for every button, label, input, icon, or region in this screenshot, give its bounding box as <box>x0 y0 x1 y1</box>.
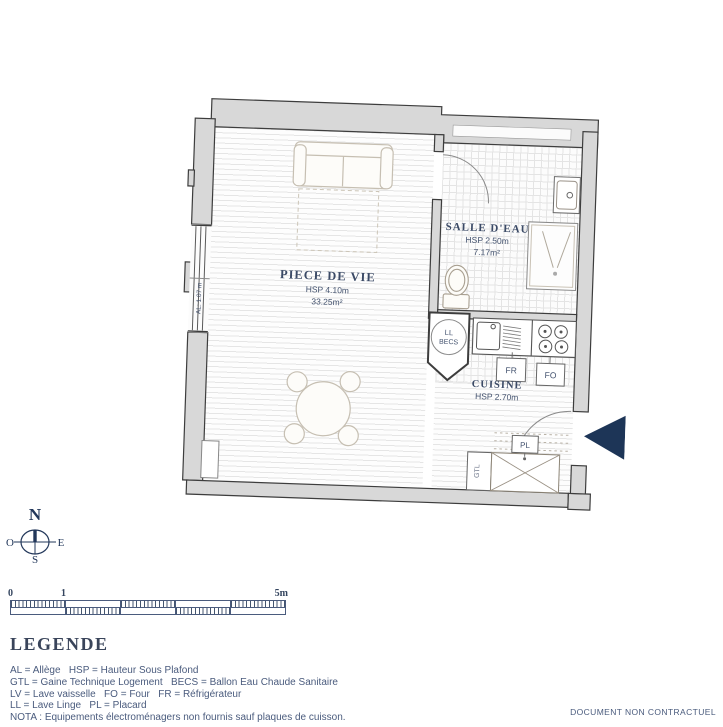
water-heater-closet: LL BECS <box>427 312 469 380</box>
wall-left-nub <box>188 170 195 186</box>
compass-west: O <box>6 537 14 549</box>
compass-east: E <box>58 537 65 549</box>
scale-segment <box>230 601 285 607</box>
oven-callout: FO <box>536 356 565 386</box>
compass-rose: N O E S <box>4 502 68 568</box>
bathroom-label: SALLE D'EAU HSP 2.50m 7.17m² <box>445 221 530 259</box>
chair <box>284 423 305 444</box>
scale-bar-top-row <box>11 601 285 607</box>
legend-line: LL = Lave Linge PL = Placard <box>10 700 346 712</box>
scale-labels: 0 1 5m <box>10 588 284 600</box>
fo-label: FO <box>544 370 557 380</box>
scale-segment <box>11 608 65 614</box>
living-room-label: PIECE DE VIE HSP 4.10m 33.25m² <box>279 267 376 308</box>
scale-bar-rows <box>10 600 286 615</box>
washbasin <box>553 177 580 214</box>
entrance-arrow-icon <box>582 413 626 460</box>
compass-needle <box>33 530 36 543</box>
scale-segment <box>11 601 65 607</box>
al-label: AL: 1.07 m <box>195 283 203 315</box>
legend: LEGENDE AL = Allège HSP = Hauteur Sous P… <box>10 634 346 724</box>
room-hsp: HSP 2.50m <box>445 235 529 247</box>
dining-table-set <box>284 369 361 446</box>
scale-segment <box>120 608 175 614</box>
scale-segment <box>65 601 120 607</box>
floor-plan: AL: 1.07 m <box>178 88 602 514</box>
room-hsp: HSP 2.70m <box>471 392 522 403</box>
scale-segment <box>65 608 120 614</box>
window-left <box>188 224 212 333</box>
fridge-callout: FR <box>496 352 526 382</box>
scale-segment <box>230 608 285 614</box>
radiator <box>201 441 219 479</box>
legend-line: GTL = Gaine Technique Logement BECS = Ba… <box>10 677 346 689</box>
pl-label: PL <box>520 441 531 450</box>
ll-label: LL <box>445 328 454 337</box>
room-hsp: HSP 4.10m <box>279 284 375 297</box>
legend-line: NOTA : Equipements électroménagers non f… <box>10 712 346 724</box>
partition-stub <box>434 134 444 151</box>
legend-line: LV = Lave vaisselle FO = Four FR = Réfri… <box>10 689 346 701</box>
scale-bar: 0 1 5m <box>10 588 284 614</box>
scale-segment <box>175 608 230 614</box>
rug-dashed-outline <box>297 189 379 253</box>
scale-tick-1: 1 <box>61 588 66 599</box>
scale-tick-5m: 5m <box>275 588 288 599</box>
room-name: PIECE DE VIE <box>280 267 376 285</box>
plan-drawing: AL: 1.07 m <box>178 88 602 514</box>
wall-left-upper <box>192 118 216 225</box>
scale-segment <box>175 601 230 607</box>
room-name: SALLE D'EAU <box>445 221 529 236</box>
kitchen-label: CUISINE HSP 2.70m <box>471 379 523 403</box>
partition-main <box>428 199 441 318</box>
scale-bar-bottom-row <box>11 607 285 614</box>
gtl-label: GTL <box>474 464 481 478</box>
compass-north: N <box>29 505 42 524</box>
room-name: CUISINE <box>472 379 523 392</box>
scale-tick-0: 0 <box>8 588 13 599</box>
legend-line: AL = Allège HSP = Hauteur Sous Plafond <box>10 665 346 677</box>
chair <box>340 371 361 392</box>
kitchen-counter <box>472 318 576 358</box>
fr-label: FR <box>505 365 517 375</box>
shower <box>527 222 578 291</box>
wall-right-lower <box>570 465 586 494</box>
disclaimer-text: DOCUMENT NON CONTRACTUEL <box>570 707 716 717</box>
legend-title: LEGENDE <box>10 634 346 655</box>
bathroom-door-arc <box>441 155 490 204</box>
sofa <box>293 142 393 189</box>
wall-bottom-right-cap <box>568 493 591 510</box>
wall-top <box>211 99 599 148</box>
compass-south: S <box>32 554 38 566</box>
scale-segment <box>120 601 175 607</box>
toilet <box>443 265 470 309</box>
becs-label: BECS <box>439 339 459 347</box>
wall-right-upper <box>573 132 598 412</box>
closet-gtl: GTL PL <box>466 434 560 493</box>
